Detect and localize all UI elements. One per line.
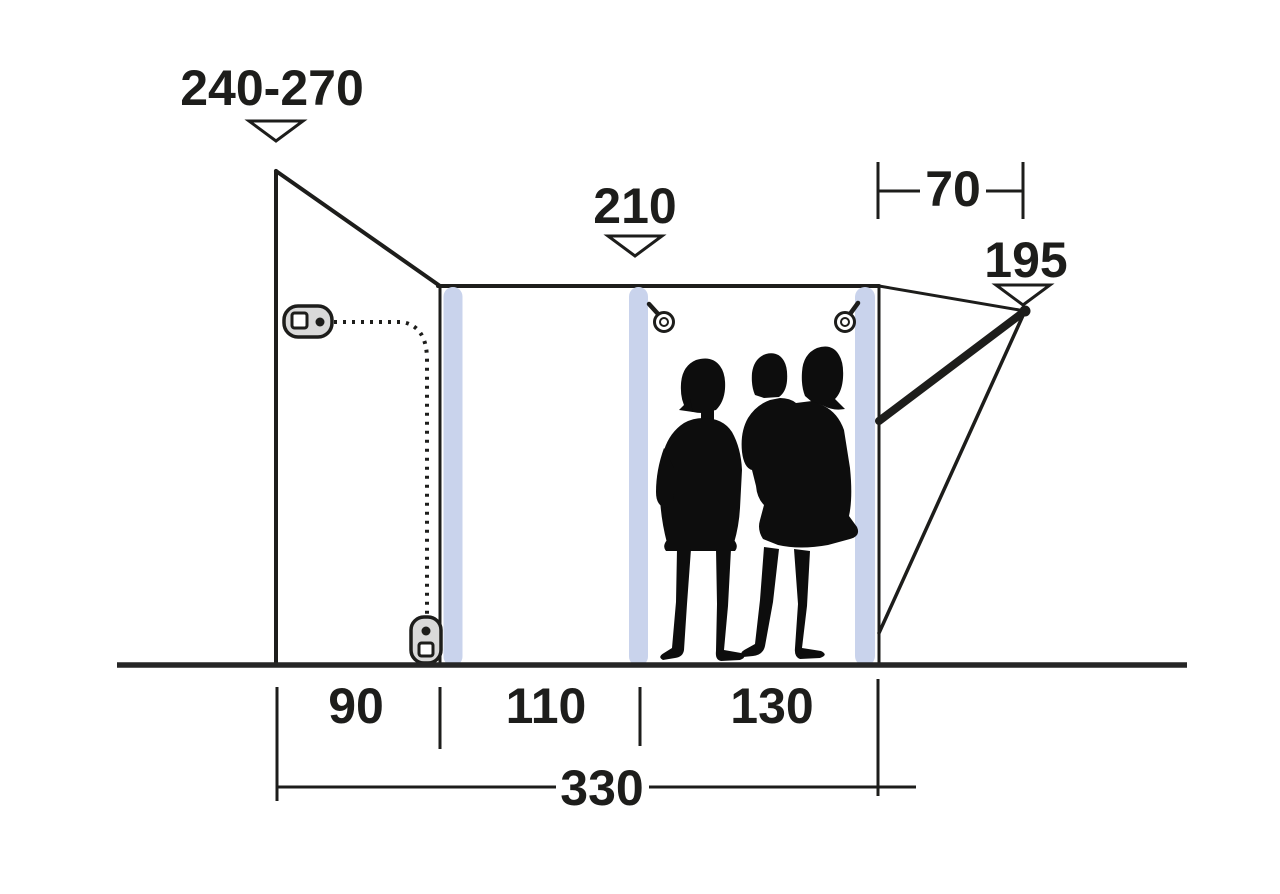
- diagram-canvas: 240-270 210 70 195 90 110 130 330: [0, 0, 1280, 894]
- door-zipper: [284, 306, 441, 663]
- pole-ring-pulls: [649, 303, 858, 332]
- zipper-ring-pull-icon: [836, 303, 859, 332]
- adult-with-child-silhouette: [741, 347, 858, 659]
- dimension-arrow-icon: [249, 121, 303, 141]
- front-door-roof-line: [276, 171, 440, 286]
- mid-height-label: 210: [593, 178, 676, 234]
- zipper-slider-icon: [284, 306, 332, 337]
- tent-outline: [276, 171, 1031, 665]
- total-width-label: 330: [560, 760, 643, 816]
- air-pole-front: [444, 287, 463, 666]
- dimension-annotations: 240-270 210 70 195 90 110 130 330: [180, 60, 1067, 816]
- section-width-1-label: 90: [328, 678, 384, 734]
- strut-joint-dot: [1020, 306, 1031, 317]
- section-width-2-label: 110: [506, 678, 587, 734]
- rear-support-strut: [879, 311, 1025, 421]
- air-pole-rear: [855, 287, 875, 666]
- rear-offset-dimension: 70: [878, 161, 1023, 219]
- dimension-arrow-icon: [608, 236, 662, 256]
- rear-guy-line: [879, 311, 1025, 633]
- width-dimensions: 90 110 130 330: [277, 678, 916, 816]
- dimension-arrow-icon: [996, 285, 1050, 305]
- zipper-ring-pull-icon: [649, 304, 674, 332]
- peak-height-label: 240-270: [180, 60, 364, 116]
- section-width-3-label: 130: [730, 678, 813, 734]
- air-pole-middle: [629, 287, 648, 666]
- zipper-slider-icon: [411, 617, 441, 663]
- rear-offset-label: 70: [925, 161, 981, 217]
- rear-height-label: 195: [984, 232, 1067, 288]
- adult-silhouette: [656, 358, 744, 661]
- tent-dimension-diagram: 240-270 210 70 195 90 110 130 330: [0, 0, 1280, 894]
- zipper-dotted-track: [334, 322, 427, 614]
